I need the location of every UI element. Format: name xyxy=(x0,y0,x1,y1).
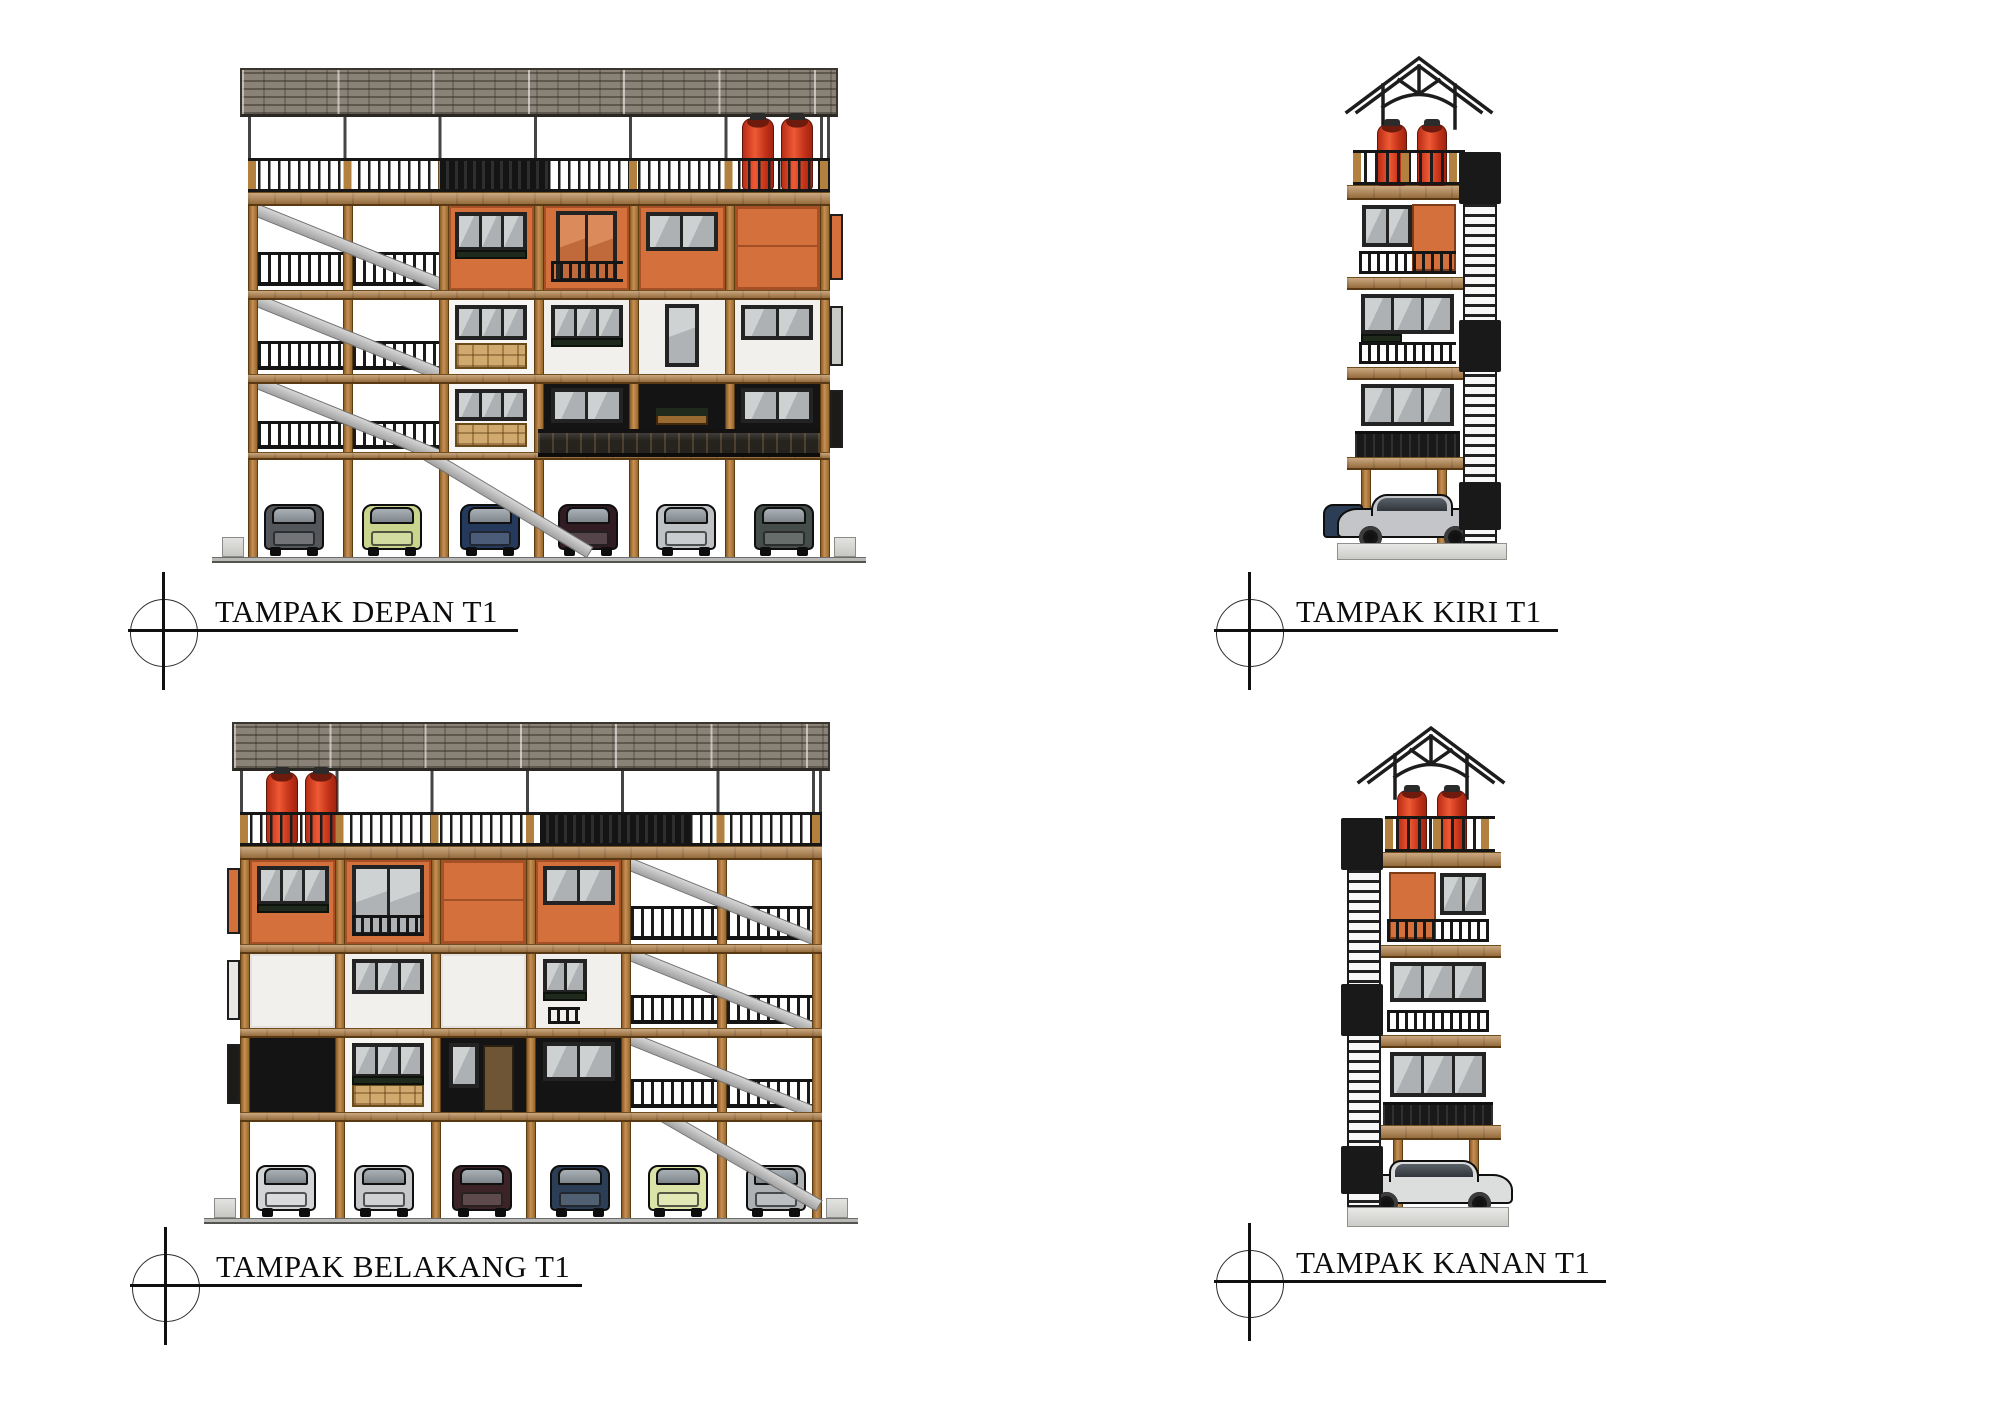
timber-beam xyxy=(1347,277,1469,290)
stair-landing xyxy=(1459,482,1501,530)
timber-column xyxy=(621,860,631,944)
wood-lattice xyxy=(455,423,527,447)
stair-railing xyxy=(727,1079,812,1109)
timber-column xyxy=(335,1038,345,1112)
planter-box xyxy=(543,992,587,1001)
window xyxy=(455,389,527,421)
car xyxy=(550,1159,610,1215)
timber-column xyxy=(526,1038,536,1112)
ground-line xyxy=(212,557,866,563)
timber-column xyxy=(335,860,345,944)
timber-column xyxy=(526,860,536,944)
timber-column xyxy=(629,206,639,290)
planter-box xyxy=(257,904,329,913)
window xyxy=(1440,873,1486,915)
parked-cars-row xyxy=(260,496,818,554)
unit-bay xyxy=(250,860,335,944)
timber-column xyxy=(526,954,536,1028)
planter-box xyxy=(656,414,707,425)
view-title-back: TAMPAK BELAKANG T1 xyxy=(216,1249,570,1285)
stair-bay xyxy=(727,860,812,944)
stair-bay xyxy=(631,1038,716,1112)
unit-bay xyxy=(735,300,820,374)
concrete-footing xyxy=(826,1198,848,1218)
window xyxy=(646,212,718,251)
window xyxy=(257,866,329,905)
unit-bay xyxy=(536,860,621,944)
balcony-railing xyxy=(1359,342,1456,364)
timber-column xyxy=(431,1038,441,1112)
concrete-plinth xyxy=(1347,1207,1509,1227)
floor-1 xyxy=(248,384,830,452)
timber-beam xyxy=(1379,1125,1501,1140)
stilt-column xyxy=(248,460,258,557)
window xyxy=(455,212,527,251)
side-panel xyxy=(227,960,240,1020)
side-panel xyxy=(227,868,240,934)
view-title-front: TAMPAK DEPAN T1 xyxy=(215,594,498,630)
floor-1 xyxy=(240,1038,822,1112)
side-panel xyxy=(830,306,843,366)
car xyxy=(648,1159,708,1215)
car xyxy=(354,1159,414,1215)
stilt-column xyxy=(820,460,830,557)
timber-beam xyxy=(248,290,830,300)
timber-beam xyxy=(1379,852,1501,868)
parking-level xyxy=(248,460,830,557)
unit-bay xyxy=(544,206,629,290)
floor-3 xyxy=(1383,868,1493,945)
timber-column xyxy=(717,1038,727,1112)
stair-railing xyxy=(258,341,343,371)
timber-beam xyxy=(240,1028,822,1038)
stair-bay xyxy=(258,384,343,452)
ground-line xyxy=(204,1218,858,1224)
timber-column xyxy=(717,954,727,1028)
timber-column xyxy=(343,206,353,290)
timber-column xyxy=(240,1038,250,1112)
unit-bay xyxy=(345,860,430,944)
timber-column xyxy=(439,300,449,374)
dark-opening-bay xyxy=(250,1038,335,1112)
view-title-right: TAMPAK KANAN T1 xyxy=(1296,1245,1590,1281)
timber-beam xyxy=(1379,945,1501,958)
stair-railing xyxy=(353,421,438,448)
rooftop-railing xyxy=(248,158,830,192)
timber-column xyxy=(812,860,822,944)
back-elevation xyxy=(240,722,822,1224)
floor-3 xyxy=(240,860,822,944)
stair-bay xyxy=(258,206,343,290)
car xyxy=(558,498,618,554)
timber-beam xyxy=(1347,457,1469,470)
window xyxy=(1390,1052,1487,1097)
unit-bay xyxy=(639,206,724,290)
right-elevation xyxy=(1333,722,1509,1229)
floor-1 xyxy=(1383,1048,1493,1125)
timber-column xyxy=(431,860,441,944)
unit-bay xyxy=(449,206,534,290)
car xyxy=(452,1159,512,1215)
timber-column xyxy=(717,860,727,944)
timber-column xyxy=(248,384,258,452)
timber-beam xyxy=(1379,1035,1501,1048)
window xyxy=(741,305,813,340)
window xyxy=(551,388,623,423)
timber-beam xyxy=(240,944,822,954)
concrete-plinth xyxy=(1337,543,1507,560)
left-elevation xyxy=(1345,52,1515,562)
timber-column xyxy=(820,300,830,374)
car xyxy=(656,498,716,554)
unit-bay xyxy=(449,300,534,374)
balcony-railing xyxy=(1355,431,1460,457)
side-panel xyxy=(830,390,843,448)
stair-bay xyxy=(727,1038,812,1112)
window xyxy=(1361,384,1453,426)
window xyxy=(741,388,813,423)
stair-railing xyxy=(631,1079,716,1109)
unit-bay xyxy=(449,384,534,452)
stair-bay xyxy=(727,954,812,1028)
stair-bay xyxy=(631,954,716,1028)
timber-column xyxy=(343,300,353,374)
timber-column xyxy=(343,384,353,452)
timber-column xyxy=(621,1038,631,1112)
floor-2 xyxy=(248,300,830,374)
long-balcony-railing xyxy=(538,429,820,457)
wood-lattice xyxy=(455,343,527,369)
unit-bay xyxy=(639,300,724,374)
timber-column xyxy=(820,384,830,452)
timber-column xyxy=(534,300,544,374)
wood-lattice xyxy=(352,1084,424,1107)
floor-1 xyxy=(1355,380,1460,457)
planter-box xyxy=(455,250,527,259)
timber-column xyxy=(820,206,830,290)
window xyxy=(352,1043,424,1078)
window xyxy=(543,959,587,994)
drawing-sheet: TAMPAK DEPAN T1 TAMPAK KIRI T1 TAMPAK BE… xyxy=(0,0,2000,1414)
window xyxy=(352,959,424,994)
stair-bay xyxy=(353,384,438,452)
window xyxy=(543,1042,615,1080)
parking-level xyxy=(240,1122,822,1218)
timber-beam xyxy=(248,374,830,384)
timber-column xyxy=(240,954,250,1028)
side-panel xyxy=(830,214,843,280)
car xyxy=(362,498,422,554)
timber-column xyxy=(248,300,258,374)
window xyxy=(543,866,615,905)
balcony-railing xyxy=(1359,251,1456,274)
balcony-railing xyxy=(1387,1010,1488,1032)
timber-column xyxy=(725,300,735,374)
plaster-bay xyxy=(250,954,335,1028)
stair-railing xyxy=(258,421,343,448)
view-title-left: TAMPAK KIRI T1 xyxy=(1296,594,1542,630)
stair-bay xyxy=(353,300,438,374)
floor-3 xyxy=(248,206,830,290)
roof xyxy=(232,722,830,771)
balcony-railing xyxy=(1383,1102,1493,1125)
timber-column xyxy=(725,206,735,290)
rooftop-railing xyxy=(1385,816,1495,852)
timber-column xyxy=(812,954,822,1028)
parked-cars-row xyxy=(252,1157,810,1215)
balcony-railing xyxy=(352,915,424,937)
unit-bay xyxy=(345,1038,430,1112)
rooftop-railing xyxy=(240,812,822,846)
gable-roof-truss xyxy=(1355,722,1507,800)
stair-landing xyxy=(1341,984,1383,1036)
front-elevation xyxy=(248,68,830,563)
stair-railing xyxy=(631,995,716,1025)
window xyxy=(1362,205,1411,247)
stilt-column xyxy=(812,1122,822,1218)
concrete-footing xyxy=(214,1198,236,1218)
unit-bay xyxy=(345,954,430,1028)
car xyxy=(746,1159,806,1215)
planter-box xyxy=(551,338,623,347)
timber-column xyxy=(534,206,544,290)
timber-column xyxy=(335,954,345,1028)
balcony-railing xyxy=(1387,919,1488,942)
car xyxy=(754,498,814,554)
unit-bay xyxy=(536,1038,621,1112)
timber-beam xyxy=(1347,367,1469,380)
plaster-bay xyxy=(441,954,526,1028)
stair-bay xyxy=(258,300,343,374)
stair-railing xyxy=(727,906,812,940)
window xyxy=(1390,962,1487,1002)
stair-landing xyxy=(1459,152,1501,204)
timber-column xyxy=(629,300,639,374)
timber-column xyxy=(248,206,258,290)
gable-roof-truss xyxy=(1343,52,1495,130)
timber-column xyxy=(240,860,250,944)
timber-column xyxy=(439,206,449,290)
window xyxy=(455,305,527,340)
floor-3 xyxy=(1355,200,1460,277)
stair-railing xyxy=(727,995,812,1025)
car xyxy=(264,498,324,554)
stair-bay xyxy=(631,860,716,944)
orange-panel-bay xyxy=(441,860,526,944)
wood-door xyxy=(483,1045,514,1112)
stair-landing xyxy=(1341,1146,1383,1194)
stair-railing xyxy=(258,252,343,286)
timber-column xyxy=(431,954,441,1028)
balcony-railing xyxy=(551,261,623,283)
planter-box xyxy=(352,1076,424,1085)
window xyxy=(551,305,623,340)
stair-landing xyxy=(1459,320,1501,372)
timber-beam xyxy=(1347,185,1469,200)
floor-2 xyxy=(240,954,822,1028)
car xyxy=(460,498,520,554)
timber-column xyxy=(812,1038,822,1112)
roof xyxy=(240,68,838,117)
timber-column xyxy=(621,954,631,1028)
stilt-column xyxy=(240,1122,250,1218)
floor-2 xyxy=(1383,958,1493,1035)
stair-landing xyxy=(1341,818,1383,870)
timber-beam xyxy=(240,1112,822,1122)
timber-beam xyxy=(248,192,830,206)
car xyxy=(256,1159,316,1215)
side-panel xyxy=(227,1044,240,1104)
timber-column xyxy=(439,384,449,452)
concrete-footing xyxy=(834,537,856,557)
stair-bay xyxy=(353,206,438,290)
glass-door xyxy=(665,304,699,366)
stair-railing xyxy=(548,1007,580,1023)
stair-railing xyxy=(353,252,438,286)
concrete-footing xyxy=(222,537,244,557)
window xyxy=(1361,294,1453,334)
railing-lattice-panel xyxy=(540,815,690,843)
railing-lattice-panel xyxy=(440,161,550,189)
orange-panel-bay xyxy=(735,206,820,290)
unit-bay xyxy=(441,1038,526,1112)
floor-2 xyxy=(1355,290,1460,367)
unit-bay xyxy=(536,954,621,1028)
stair-railing xyxy=(353,341,438,371)
unit-bay xyxy=(544,300,629,374)
rooftop-railing xyxy=(1353,150,1465,185)
window xyxy=(449,1043,479,1087)
timber-beam xyxy=(240,846,822,860)
stair-railing xyxy=(631,906,716,940)
